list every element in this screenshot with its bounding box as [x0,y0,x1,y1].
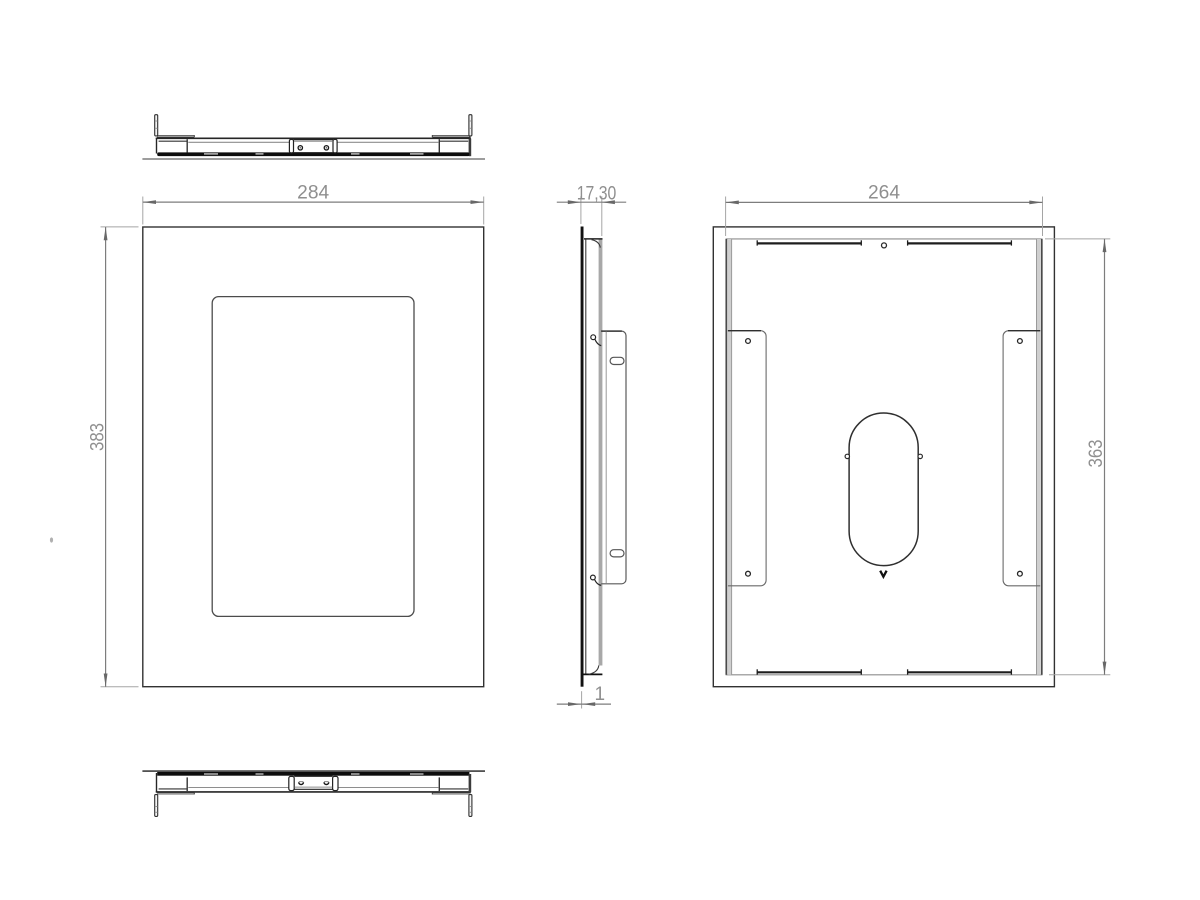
svg-text:383: 383 [87,423,108,451]
svg-text:363: 363 [1086,440,1107,468]
svg-text:17,30: 17,30 [577,183,617,204]
svg-text:264: 264 [868,183,900,204]
svg-text:1: 1 [595,684,606,705]
svg-text:284: 284 [297,182,329,203]
